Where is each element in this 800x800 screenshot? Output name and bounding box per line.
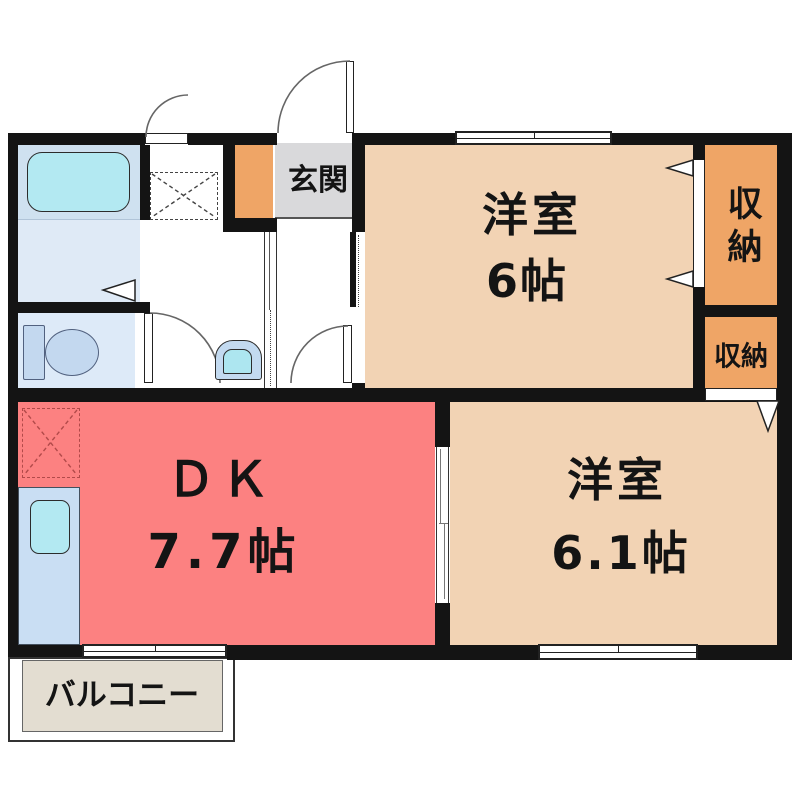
wall — [352, 145, 365, 232]
wall — [8, 388, 792, 402]
refrigerator-pad-icon — [22, 408, 80, 478]
door-arc-icon — [148, 311, 222, 385]
room-label-entrance: 玄関 — [288, 166, 348, 196]
wall — [352, 133, 456, 145]
wall — [8, 645, 82, 657]
sliding-window-icon — [538, 644, 698, 660]
room-label-bedroom-6: 洋室 — [482, 192, 582, 238]
wall — [693, 317, 705, 388]
door-arc-icon — [289, 324, 350, 385]
sliding-door-icon — [436, 447, 449, 603]
room-bedroom-6-1 — [450, 402, 777, 645]
room-size-bedroom-6-1: 6.1帖 — [551, 530, 691, 576]
wall — [705, 305, 777, 317]
wall — [140, 145, 150, 220]
sliding-door-panel — [350, 232, 356, 307]
shoe-cabinet — [235, 143, 273, 218]
wall — [227, 645, 538, 660]
door-arc-icon — [276, 59, 352, 135]
wall — [693, 133, 705, 160]
wall — [8, 133, 145, 145]
room-size-bedroom-6: 6帖 — [486, 258, 568, 304]
closet-door — [693, 160, 705, 287]
room-dk — [18, 400, 435, 645]
wall — [698, 645, 792, 660]
floor-plan-canvas: 玄関 洋室 6帖 収納 収納 ＤＫ 7.7帖 洋室 6.1帖 バルコニー — [0, 0, 800, 800]
folding-door-triangle-icon — [755, 400, 781, 433]
bath-divider-line — [18, 219, 140, 220]
sliding-door-track — [358, 235, 359, 307]
washing-machine-pad-icon — [150, 172, 218, 220]
sliding-window-icon — [82, 644, 227, 658]
kitchen-counter — [18, 487, 80, 645]
room-size-dk: 7.7帖 — [147, 528, 300, 576]
balcony-label: バルコニー — [45, 681, 199, 712]
wall — [435, 603, 450, 660]
closet-upper-label: 収納 — [724, 185, 759, 271]
closet-lower-label: 収納 — [714, 344, 768, 371]
wall — [8, 302, 150, 313]
entrance-step-line — [275, 217, 363, 219]
room-label-dk: ＤＫ — [167, 456, 275, 504]
folding-door-triangle-icon — [101, 279, 137, 303]
folding-door-triangle-icon — [665, 159, 695, 178]
wall — [352, 383, 365, 391]
sliding-window-icon — [455, 131, 612, 145]
room-label-bedroom-6-1: 洋室 — [567, 457, 667, 503]
kitchen-sink-icon — [30, 500, 70, 554]
bathtub-icon — [27, 152, 130, 212]
door-arc-icon — [144, 93, 190, 139]
hand-basin-icon — [215, 340, 262, 380]
folding-door-triangle-icon — [665, 270, 695, 289]
wall — [223, 218, 277, 232]
sliding-door-icon — [264, 232, 277, 388]
wall — [435, 391, 450, 447]
wall — [693, 287, 705, 317]
